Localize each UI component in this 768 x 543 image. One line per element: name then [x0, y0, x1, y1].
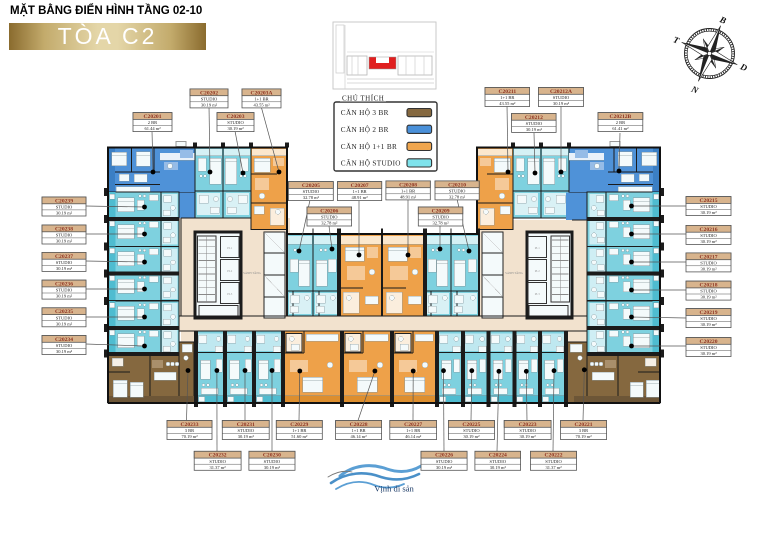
svg-text:STUDIO: STUDIO	[436, 459, 453, 464]
svg-text:1+1 BR: 1+1 BR	[401, 189, 415, 194]
svg-text:32.78 m²: 32.78 m²	[303, 195, 320, 200]
svg-text:STUDIO: STUDIO	[700, 204, 717, 209]
svg-text:STUDIO: STUDIO	[209, 459, 226, 464]
svg-text:C20205: C20205	[302, 183, 320, 189]
svg-text:30.19 m²: 30.19 m²	[56, 294, 73, 299]
svg-text:C20212A: C20212A	[550, 89, 572, 95]
svg-text:C20227: C20227	[404, 422, 422, 428]
svg-text:C20211: C20211	[498, 89, 516, 95]
svg-text:PL3: PL3	[227, 292, 233, 296]
svg-text:C20224: C20224	[489, 453, 507, 459]
svg-text:48.91 m²: 48.91 m²	[352, 195, 369, 200]
svg-text:CĂN HỘ 3 BR: CĂN HỘ 3 BR	[341, 107, 389, 117]
svg-text:30.19 m²: 30.19 m²	[700, 239, 717, 244]
svg-text:SẢNH TẦNG: SẢNH TẦNG	[243, 270, 261, 275]
svg-text:30.19 m²: 30.19 m²	[700, 351, 717, 356]
svg-text:C20209: C20209	[432, 208, 450, 214]
svg-text:STUDIO: STUDIO	[490, 459, 507, 464]
svg-text:C20230: C20230	[263, 453, 281, 459]
svg-text:STUDIO: STUDIO	[526, 121, 543, 126]
svg-text:STUDIO: STUDIO	[553, 95, 570, 100]
svg-text:30.19 m²: 30.19 m²	[700, 267, 717, 272]
svg-text:2 BR: 2 BR	[148, 120, 157, 125]
svg-text:30.19 m²: 30.19 m²	[56, 239, 73, 244]
svg-text:30.19 m²: 30.19 m²	[700, 295, 717, 300]
svg-text:61.41 m²: 61.41 m²	[612, 126, 629, 131]
svg-text:30.19 m²: 30.19 m²	[526, 127, 543, 132]
svg-text:STUDIO: STUDIO	[56, 260, 73, 265]
svg-text:C20222: C20222	[544, 453, 562, 459]
svg-text:3 BR: 3 BR	[579, 428, 588, 433]
svg-text:31.37 m²: 31.37 m²	[545, 465, 562, 470]
svg-text:1+1 BR: 1+1 BR	[406, 428, 420, 433]
svg-text:STUDIO: STUDIO	[519, 428, 536, 433]
svg-text:STUDIO: STUDIO	[238, 428, 255, 433]
svg-text:STUDIO: STUDIO	[56, 233, 73, 238]
svg-text:3 BR: 3 BR	[185, 428, 194, 433]
svg-text:C20220: C20220	[699, 339, 717, 345]
svg-text:STUDIO: STUDIO	[321, 215, 338, 220]
svg-text:C20206: C20206	[320, 208, 338, 214]
svg-text:STUDIO: STUDIO	[56, 343, 73, 348]
svg-text:STUDIO: STUDIO	[432, 215, 449, 220]
svg-text:70.19 m²: 70.19 m²	[575, 434, 592, 439]
svg-text:30.19 m²: 30.19 m²	[56, 266, 73, 271]
svg-text:30.19 m²: 30.19 m²	[56, 321, 73, 326]
svg-text:STUDIO: STUDIO	[227, 120, 244, 125]
svg-text:PL3: PL3	[535, 292, 541, 296]
svg-text:C20233: C20233	[180, 422, 198, 428]
svg-text:C20217: C20217	[699, 254, 717, 260]
svg-text:STUDIO: STUDIO	[545, 459, 562, 464]
svg-text:C20210: C20210	[448, 182, 466, 188]
svg-text:STUDIO: STUDIO	[264, 459, 281, 464]
svg-text:2 BR: 2 BR	[616, 120, 625, 125]
svg-text:C20201: C20201	[143, 114, 161, 120]
svg-text:C20234: C20234	[55, 337, 73, 343]
svg-text:STUDIO: STUDIO	[700, 233, 717, 238]
svg-text:STUDIO: STUDIO	[463, 428, 480, 433]
svg-text:C20232: C20232	[209, 453, 227, 459]
svg-text:C20203A: C20203A	[250, 90, 272, 96]
svg-text:32.78 m²: 32.78 m²	[433, 221, 450, 226]
svg-text:C20229: C20229	[290, 422, 308, 428]
svg-text:32.78 m²: 32.78 m²	[449, 195, 466, 200]
svg-text:C20238: C20238	[55, 226, 73, 232]
svg-text:1+1 BR: 1+1 BR	[292, 428, 306, 433]
svg-text:30.19 m²: 30.19 m²	[56, 211, 73, 216]
svg-text:30.19 m²: 30.19 m²	[700, 322, 717, 327]
svg-text:STUDIO: STUDIO	[303, 189, 320, 194]
svg-text:30.19 m²: 30.19 m²	[520, 434, 537, 439]
svg-text:46.14 m²: 46.14 m²	[405, 434, 422, 439]
svg-text:STUDIO: STUDIO	[700, 289, 717, 294]
svg-text:C20219: C20219	[699, 310, 717, 316]
svg-text:C20225: C20225	[462, 422, 480, 428]
svg-text:STUDIO: STUDIO	[449, 189, 466, 194]
svg-text:PL2: PL2	[227, 269, 233, 273]
svg-text:C20237: C20237	[55, 254, 73, 260]
svg-text:C20231: C20231	[237, 422, 255, 428]
svg-text:61.44 m²: 61.44 m²	[144, 126, 161, 131]
svg-text:STUDIO: STUDIO	[56, 288, 73, 293]
svg-text:C20226: C20226	[435, 453, 453, 459]
svg-text:C20212: C20212	[525, 115, 543, 121]
svg-text:C20228: C20228	[350, 422, 368, 428]
svg-text:STUDIO: STUDIO	[56, 205, 73, 210]
svg-text:70.19 m²: 70.19 m²	[181, 434, 198, 439]
svg-text:C20215: C20215	[699, 198, 717, 204]
svg-text:C20216: C20216	[699, 227, 717, 233]
svg-text:30.19 m²: 30.19 m²	[490, 465, 507, 470]
svg-text:STUDIO: STUDIO	[201, 97, 218, 102]
svg-text:C20208: C20208	[399, 182, 417, 188]
svg-text:32.78 m²: 32.78 m²	[321, 221, 338, 226]
svg-text:31.37 m²: 31.37 m²	[210, 465, 227, 470]
svg-text:30.19 m²: 30.19 m²	[201, 103, 218, 108]
svg-text:C20202: C20202	[200, 90, 218, 96]
svg-text:C20207: C20207	[351, 183, 369, 189]
svg-text:46.14 m²: 46.14 m²	[351, 434, 368, 439]
svg-text:30.19 m²: 30.19 m²	[436, 465, 453, 470]
svg-text:SẢNH TẦNG: SẢNH TẦNG	[505, 270, 523, 275]
svg-text:C20235: C20235	[55, 309, 73, 315]
svg-text:PL1: PL1	[227, 246, 233, 250]
svg-text:30.19 m²: 30.19 m²	[238, 434, 255, 439]
svg-text:C20212B: C20212B	[610, 114, 632, 120]
svg-text:PL1: PL1	[535, 246, 541, 250]
svg-text:C20203: C20203	[226, 114, 244, 120]
svg-text:CĂN HỘ 2 BR: CĂN HỘ 2 BR	[341, 124, 389, 134]
svg-text:C20223: C20223	[519, 422, 537, 428]
svg-text:30.19 m²: 30.19 m²	[463, 434, 480, 439]
svg-text:1+1 BR: 1+1 BR	[353, 189, 367, 194]
svg-text:48.91 m²: 48.91 m²	[400, 195, 417, 200]
svg-text:1+1 BR: 1+1 BR	[500, 95, 514, 100]
svg-text:T: T	[672, 34, 681, 46]
svg-text:43.55 m²: 43.55 m²	[253, 103, 270, 108]
svg-text:PL2: PL2	[535, 269, 541, 273]
svg-text:STUDIO: STUDIO	[700, 261, 717, 266]
svg-text:30.19 m²: 30.19 m²	[264, 465, 281, 470]
svg-text:N: N	[689, 83, 700, 95]
svg-text:30.19 m²: 30.19 m²	[56, 349, 73, 354]
svg-text:51.60 m²: 51.60 m²	[291, 434, 308, 439]
svg-text:30.19 m²: 30.19 m²	[227, 126, 244, 131]
svg-text:1+1 BR: 1+1 BR	[254, 97, 268, 102]
svg-text:C20218: C20218	[699, 283, 717, 289]
svg-text:STUDIO: STUDIO	[700, 345, 717, 350]
svg-text:C20221: C20221	[574, 422, 592, 428]
svg-text:CĂN HỘ STUDIO: CĂN HỘ STUDIO	[341, 157, 401, 167]
svg-text:CĂN HỘ 1+1 BR: CĂN HỘ 1+1 BR	[341, 141, 397, 151]
svg-text:STUDIO: STUDIO	[56, 315, 73, 320]
svg-text:C20239: C20239	[55, 198, 73, 204]
svg-text:1+1 BR: 1+1 BR	[352, 428, 366, 433]
svg-text:CHÚ THÍCH: CHÚ THÍCH	[342, 94, 384, 102]
svg-text:30.19 m²: 30.19 m²	[553, 101, 570, 106]
svg-text:C20236: C20236	[55, 282, 73, 288]
svg-text:B: B	[717, 14, 727, 26]
svg-text:Vịnh di sản: Vịnh di sản	[374, 484, 414, 494]
svg-text:D: D	[738, 61, 749, 73]
svg-text:STUDIO: STUDIO	[700, 316, 717, 321]
svg-text:30.19 m²: 30.19 m²	[700, 210, 717, 215]
svg-text:43.55 m²: 43.55 m²	[499, 101, 516, 106]
